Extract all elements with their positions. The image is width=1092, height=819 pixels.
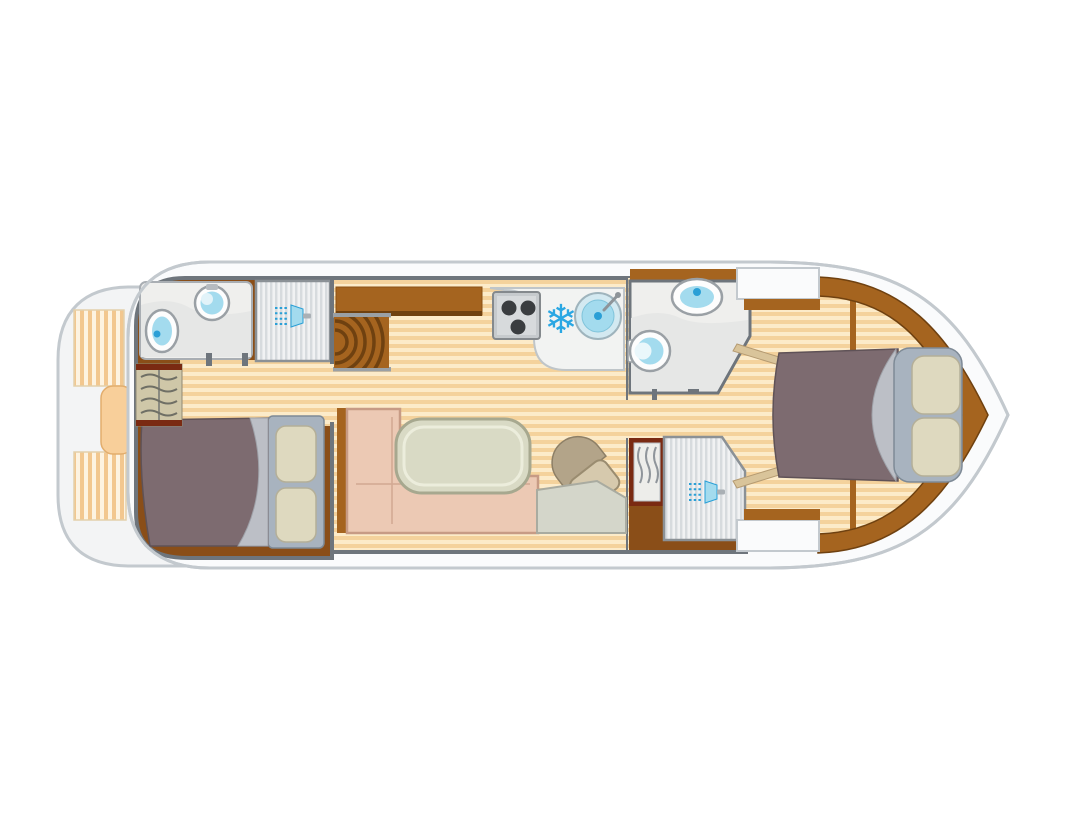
mid-wardrobe [629,438,664,506]
bench-seat-port [74,310,124,386]
washbasin [672,279,722,315]
aft-bathroom [140,282,252,366]
floor-panel [629,504,664,552]
wardrobe-trim [136,364,182,370]
sideboard [336,287,482,316]
door-stub [242,353,248,366]
pillow [912,356,960,414]
aft-double-bed [141,416,324,548]
bow-double-bed [773,348,962,482]
boat-floor-plan: ❄ [0,0,1092,819]
floor-trim [850,299,856,357]
door-stub [206,353,212,366]
floor-plan-canvas: ❄ [0,0,1092,819]
deck-panel [737,520,819,551]
wood-trim [744,509,820,520]
washbasin [195,284,229,320]
aft-shower [256,281,330,361]
galley-sink [575,292,621,339]
stove [493,292,540,339]
doorway-aft [326,364,338,422]
mid-section [622,269,759,552]
door-stub [688,389,699,394]
doorway-saloon [622,400,634,438]
fridge-icon: ❄ [544,297,578,343]
pillow [276,488,316,542]
wardrobe-trim [136,420,182,426]
cabinet-top-trim [630,269,742,281]
toilet [146,310,178,352]
toilet [628,331,670,371]
dinette-table [396,419,530,493]
door-stub [652,389,657,400]
pillow [912,418,960,476]
pillow [276,426,316,482]
bench-seat-starboard [74,452,126,520]
aft-wardrobe [136,364,182,426]
deck-panel [737,268,819,299]
wood-trim [744,299,820,310]
floor-trim [850,474,856,532]
saloon: ❄ [326,278,628,552]
floor-trim [337,408,347,533]
aft-cabin [136,278,332,558]
